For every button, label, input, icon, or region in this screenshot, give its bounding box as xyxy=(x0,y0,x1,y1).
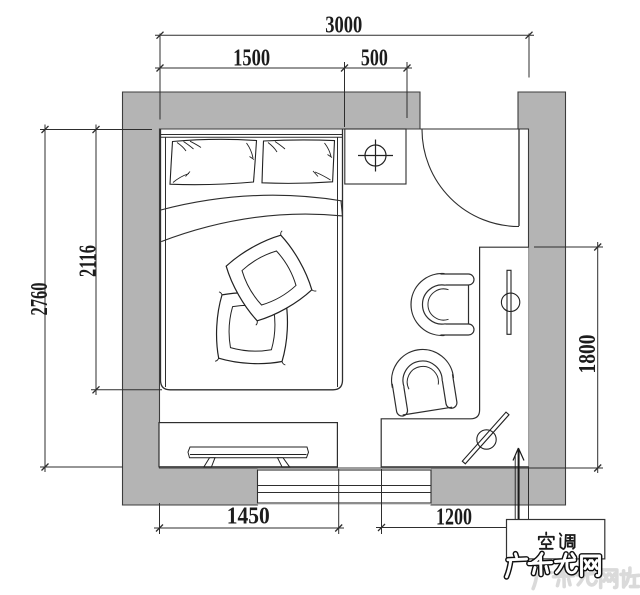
svg-text:1450: 1450 xyxy=(227,504,270,530)
svg-text:3000: 3000 xyxy=(325,13,362,39)
svg-text:1500: 1500 xyxy=(233,46,270,72)
svg-text:2760: 2760 xyxy=(27,283,53,316)
svg-text:1200: 1200 xyxy=(436,505,472,531)
svg-text:2116: 2116 xyxy=(76,245,102,277)
svg-text:500: 500 xyxy=(361,46,388,72)
svg-text:1800: 1800 xyxy=(575,335,601,374)
